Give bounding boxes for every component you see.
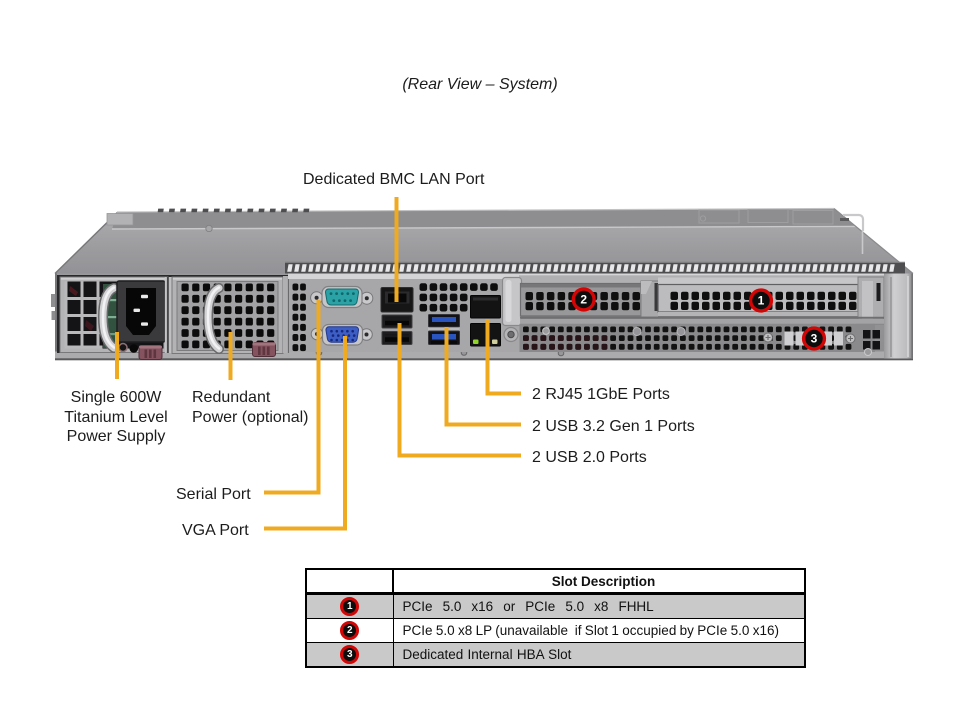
svg-text:3: 3 — [811, 332, 818, 346]
svg-text:2: 2 — [580, 293, 587, 307]
svg-text:1: 1 — [758, 294, 765, 308]
